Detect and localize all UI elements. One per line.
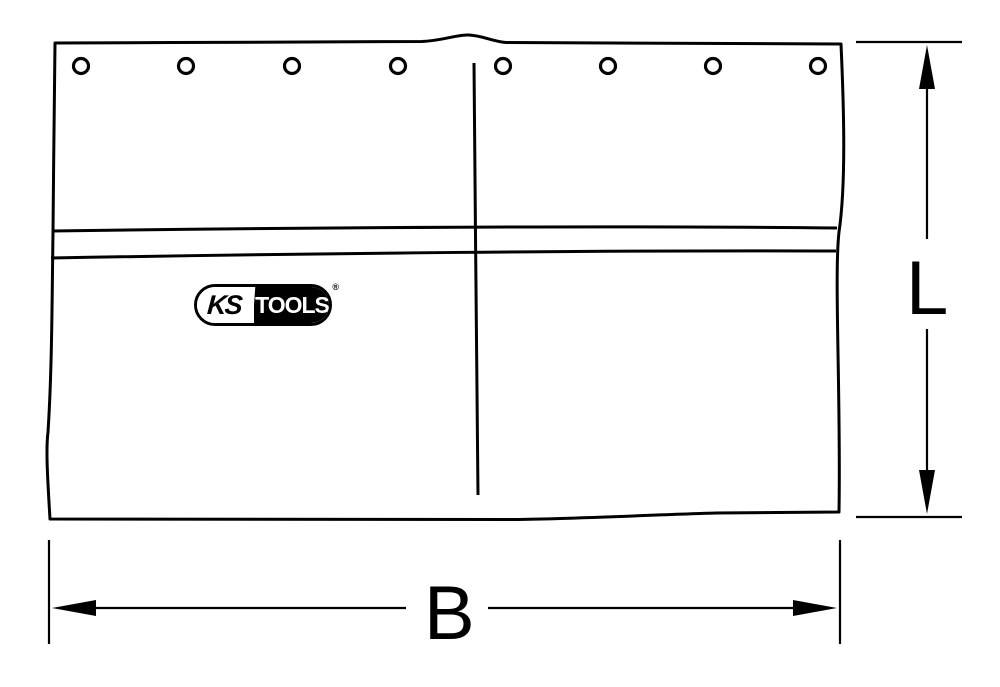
b-arrowhead-right-icon <box>793 600 837 616</box>
logo-tools-text: TOOLS <box>254 287 329 323</box>
eyelet-icon <box>811 59 826 74</box>
eyelet-icon <box>285 59 300 74</box>
eyelet-icon <box>391 59 406 74</box>
registered-trademark-icon: ® <box>332 283 339 292</box>
dimension-label-length: L <box>906 251 948 327</box>
l-arrowhead-up-icon <box>919 45 935 89</box>
logo-pill: KS TOOLS <box>194 284 332 326</box>
eyelet-icon <box>74 59 89 74</box>
eyelet-icon <box>601 59 616 74</box>
b-arrowhead-left-icon <box>52 600 96 616</box>
dimension-label-width: B <box>424 576 475 652</box>
eyelet-icon <box>496 59 511 74</box>
l-arrowhead-down-icon <box>919 470 935 514</box>
eyelet-icon <box>179 59 194 74</box>
logo-ks-text: KS <box>196 287 256 323</box>
curtain-panel-outline <box>47 35 844 520</box>
curtain-drawing-svg <box>0 0 1000 687</box>
eyelet-icon <box>706 59 721 74</box>
technical-drawing-canvas: L B KS TOOLS ® <box>0 0 1000 687</box>
ks-tools-logo: KS TOOLS ® <box>194 284 334 326</box>
